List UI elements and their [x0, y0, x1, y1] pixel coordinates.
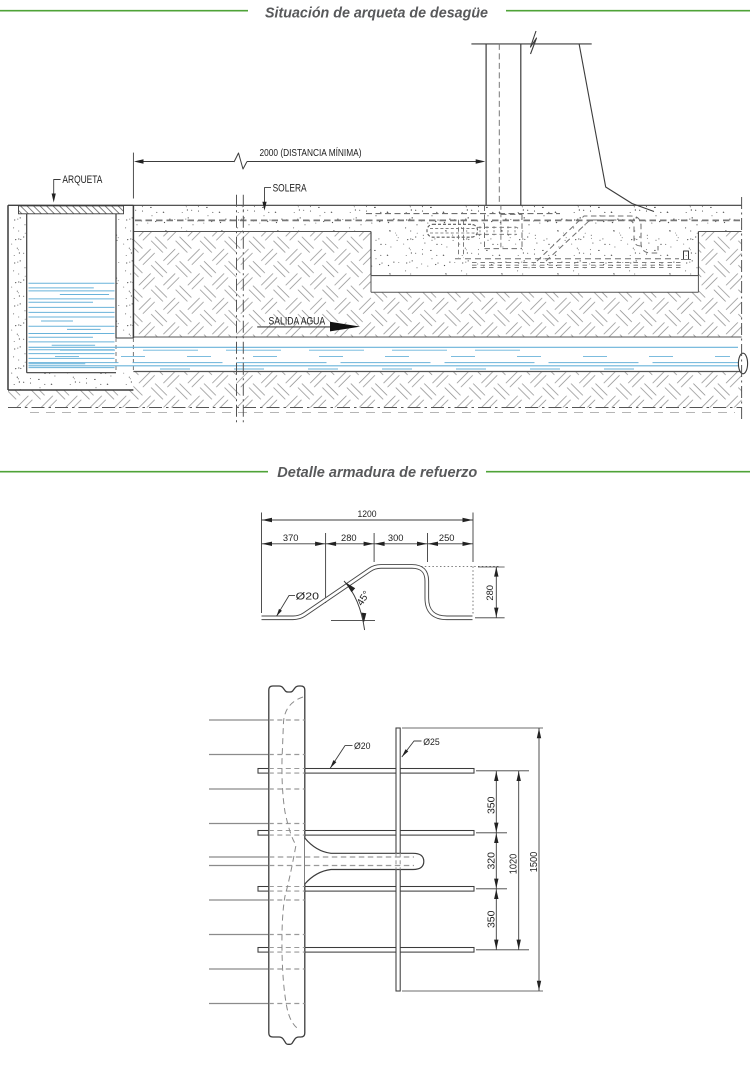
svg-text:300: 300 [388, 532, 404, 543]
svg-text:350: 350 [486, 910, 497, 928]
svg-text:250: 250 [439, 532, 455, 543]
svg-text:280: 280 [341, 532, 357, 543]
svg-text:350: 350 [486, 796, 497, 814]
svg-text:Detalle armadura de refuerzo: Detalle armadura de refuerzo [277, 464, 477, 481]
svg-text:320: 320 [486, 852, 497, 870]
svg-text:1500: 1500 [529, 851, 540, 872]
svg-text:2000 (DISTANCIA MÍNIMA): 2000 (DISTANCIA MÍNIMA) [260, 146, 362, 159]
svg-text:Ø20: Ø20 [354, 741, 371, 752]
svg-text:ARQUETA: ARQUETA [62, 174, 103, 186]
svg-text:1020: 1020 [509, 853, 520, 874]
svg-text:Situación de arqueta de desagü: Situación de arqueta de desagüe [265, 4, 488, 21]
svg-text:Ø20: Ø20 [296, 591, 320, 602]
svg-text:1200: 1200 [357, 508, 376, 519]
svg-text:Ø25: Ø25 [423, 737, 440, 748]
svg-text:370: 370 [283, 532, 299, 543]
svg-text:280: 280 [484, 585, 495, 601]
svg-text:SALIDA AGUA: SALIDA AGUA [269, 316, 326, 328]
svg-text:SOLERA: SOLERA [273, 183, 308, 195]
